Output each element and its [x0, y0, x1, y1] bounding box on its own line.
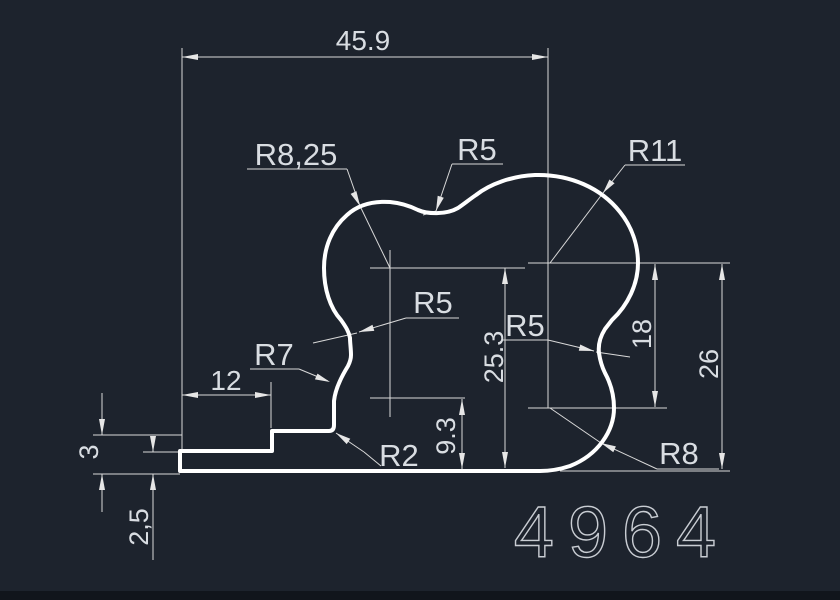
radius-text-r11: R11: [628, 133, 683, 168]
radius-text-r7: R7: [254, 337, 294, 372]
radius-text-r5-left: R5: [413, 285, 453, 320]
part-number: 4964: [514, 493, 730, 573]
drawing-canvas[interactable]: 45.9 12 25.3 9.3 18 26 3 2,5 R8,25 R5 R1…: [0, 0, 840, 600]
dim-text-height-small: 9.3: [431, 417, 461, 455]
dim-text-flange-thickness: 2,5: [124, 508, 154, 546]
cad-viewport[interactable]: 45.9 12 25.3 9.3 18 26 3 2,5 R8,25 R5 R1…: [0, 0, 840, 600]
radius-text-r8-25: R8,25: [255, 137, 338, 172]
dim-text-height-outer-right: 26: [694, 349, 724, 379]
radius-text-r5-right: R5: [505, 308, 545, 343]
dim-text-height-inner-right: 18: [627, 319, 657, 349]
radius-text-r8: R8: [659, 436, 699, 471]
dim-text-step-height: 3: [74, 444, 104, 459]
dim-text-flange-length: 12: [210, 365, 241, 396]
radius-text-r2: R2: [379, 438, 419, 473]
radius-text-r5-top: R5: [457, 132, 497, 167]
dim-text-overall-width: 45.9: [336, 25, 391, 56]
bottom-strip: [0, 591, 840, 600]
